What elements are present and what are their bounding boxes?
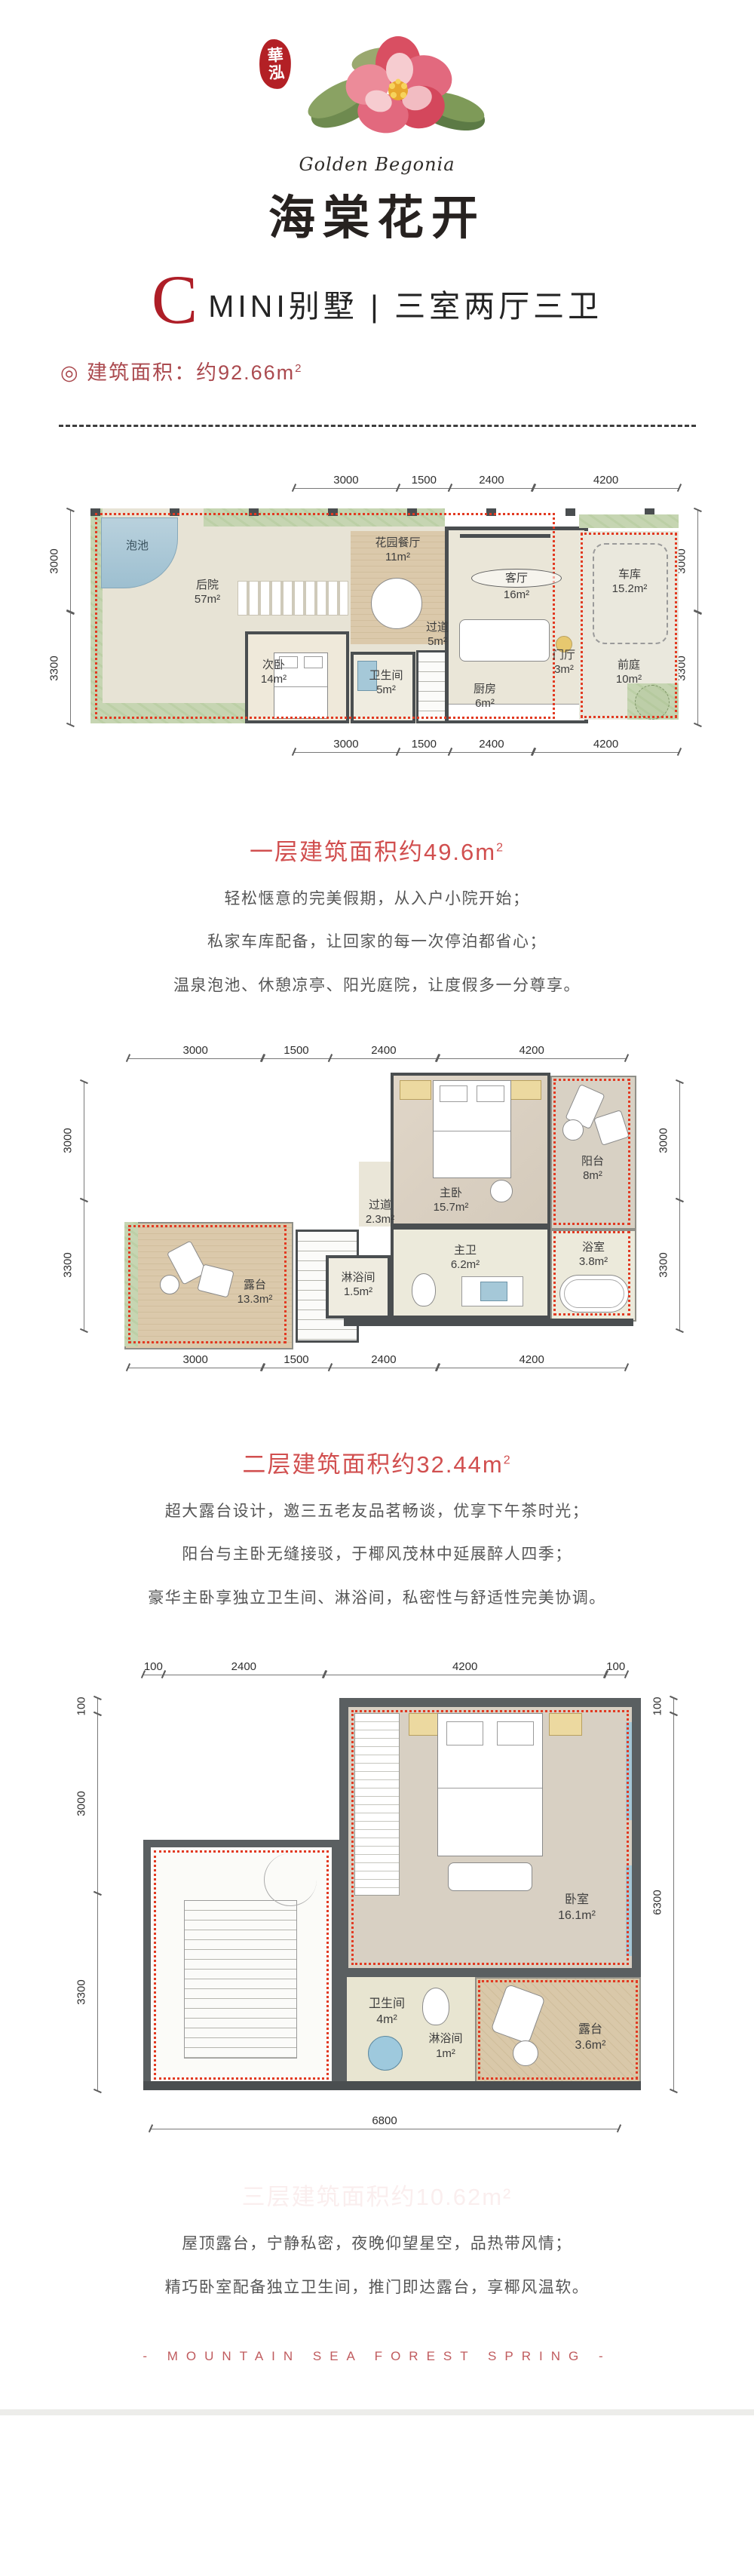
floor3-dims-left: 100 3000 3300 — [87, 1698, 98, 2090]
floor1-line-1: 轻松惬意的完美假期，从入户小院开始； — [0, 886, 754, 912]
floor2-building: 露台 13.3m² 过道 2.3m² 主卧 15.7m² — [90, 1065, 679, 1344]
floor3-stairs — [184, 1900, 297, 2059]
room-label-second-bedroom: 次卧 14m² — [247, 658, 300, 687]
bullet-icon: ◎ — [60, 361, 80, 384]
poster-page: 華泓 — [0, 0, 754, 2415]
dashed-divider — [59, 425, 696, 427]
room-label-garage: 车库 15.2m² — [588, 567, 671, 597]
terrace-table — [160, 1275, 179, 1294]
room-label-floor1-corridor: 过道 5m² — [415, 620, 460, 649]
brand-name-chinese: 海棠花开 — [0, 180, 754, 247]
room-label-balcony: 阳台 8m² — [562, 1154, 623, 1184]
floor1-heading: 一层建筑面积约49.6m2 — [0, 833, 754, 867]
floor3-building: 卧室 16.1m² 卫生间 4m² 淋浴间 1m² — [121, 1698, 648, 2090]
floor3-stair-block — [143, 1840, 339, 2090]
floor1-text-section: 一层建筑面积约49.6m2 轻松惬意的完美假期，从入户小院开始； 私家车库配备，… — [0, 833, 754, 999]
brand-name-english: Golden Begonia — [0, 154, 754, 175]
floor2-heading: 二层建筑面积约32.44m2 — [0, 1445, 754, 1479]
unit-title: C MINI别墅 | 三室两厅三卫 — [0, 273, 754, 327]
floor2-bottom-wall — [344, 1319, 633, 1326]
vanity-counter — [461, 1276, 523, 1306]
room-label-master-bath: 主卫 6.2m² — [431, 1243, 499, 1273]
room-label-pool: 泡池 — [107, 539, 167, 554]
room-label-floor2-shower: 淋浴间 1.5m² — [326, 1270, 391, 1300]
floor3-line-2: 精巧卧室配备独立卫生间，推门即达露台，享椰风温软。 — [0, 2275, 754, 2301]
floor2-line-2: 阳台与主卧无缝接驳，于椰风茂林中延展醉人四季； — [0, 1542, 754, 1567]
room-label-master-bedroom: 主卧 15.7m² — [413, 1186, 489, 1215]
brand-logo: 華泓 — [0, 0, 754, 247]
wardrobe — [354, 1713, 400, 1896]
window-strip-bottom — [626, 1865, 632, 1956]
terrace-garden-edge — [124, 1222, 138, 1346]
room-label-floor3-terrace: 露台 3.6m² — [558, 2022, 623, 2054]
room-label-floor3-bedroom: 卧室 16.1m² — [535, 1893, 618, 1924]
unit-letter: C — [152, 273, 198, 327]
room-label-garden-dining: 花园餐厅 11m² — [351, 536, 445, 565]
floor1-dims-left: 3000 3300 — [60, 510, 71, 725]
tree-icon — [635, 685, 670, 720]
floor3-bedroom-block — [339, 1698, 641, 1977]
seal-text: 華泓 — [262, 46, 287, 82]
nightstand-right — [549, 1713, 582, 1736]
total-area-sup: 2 — [295, 362, 302, 375]
floor3-bathroom — [339, 1977, 475, 2083]
floor2-dims-bottom: 3000 1500 2400 4200 — [128, 1358, 626, 1368]
room-label-floor3-bathroom: 卫生间 4m² — [353, 1997, 421, 2028]
floor2-dims-left: 3000 3300 — [74, 1082, 84, 1331]
floor3-heading-ghost: 三层建筑面积约10.62m² — [0, 2178, 754, 2212]
floor1-dims-top: 3000 1500 2400 4200 — [294, 478, 679, 489]
room-label-floor1-bathroom: 卫生间 5m² — [356, 668, 416, 698]
floor3-plan: 100 2400 4200 100 100 3000 3300 100 6300… — [38, 1650, 716, 2148]
room-label-bath: 浴室 3.8m² — [564, 1240, 623, 1270]
toilet — [422, 1988, 449, 2025]
room-label-living: 客厅 16m² — [471, 569, 562, 603]
garden-strip-bottom — [90, 703, 264, 723]
room-label-foyer: 门厅 3m² — [543, 648, 585, 677]
total-area-text: 建筑面积：约92.66m — [87, 361, 295, 384]
master-bath — [391, 1227, 550, 1319]
floor2-plan: 3000 1500 2400 4200 3000 3300 3000 3300 … — [38, 1035, 716, 1397]
bed-bench — [448, 1862, 532, 1891]
floor2-line-1: 超大露台设计，邀三五老友品茗畅谈，优享下午茶时光； — [0, 1499, 754, 1524]
floor2-line-3: 豪华主卧享独立卫生间、淋浴间，私密性与舒适性完美协调。 — [0, 1586, 754, 1611]
floor1-line-2: 私家车库配备，让回家的每一次停泊都省心； — [0, 929, 754, 955]
floor3-bottom-wall — [143, 2081, 641, 2090]
room-label-kitchen: 厨房 6m² — [458, 682, 511, 711]
window-strip-top — [626, 1722, 632, 1820]
room-label-front-yard: 前庭 10m² — [590, 658, 668, 687]
floor3-dims-right: 100 6300 — [664, 1698, 674, 2090]
brand-seal: 華泓 — [258, 38, 293, 91]
door-swing-arc — [264, 1853, 317, 1906]
floor1-line-3: 温泉泡池、休憩凉亭、阳光庭院，让度假多一分尊享。 — [0, 973, 754, 999]
floor2-dims-top: 3000 1500 2400 4200 — [128, 1049, 626, 1059]
floor3-text-section: 三层建筑面积约10.62m² 屋顶露台，宁静私密，夜晚仰望星空，品热带风情； 精… — [0, 2178, 754, 2300]
sofa — [459, 619, 550, 662]
garage-garden-strip — [579, 514, 679, 528]
bedroom-rug — [490, 1180, 513, 1202]
floor2-text-section: 二层建筑面积约32.44m2 超大露台设计，邀三五老友品茗畅谈，优享下午茶时光；… — [0, 1445, 754, 1611]
unit-description: MINI别墅 | 三室两厅三卫 — [208, 281, 602, 327]
room-label-floor2-corridor: 过道 2.3m² — [356, 1198, 404, 1227]
shower-tray — [368, 2036, 403, 2071]
pergola-trellis — [238, 581, 348, 616]
total-area-line: ◎ 建筑面积：约92.66m2 — [60, 356, 694, 385]
balcony-table — [562, 1119, 584, 1141]
floor1-dims-bottom: 3000 1500 2400 4200 — [294, 742, 679, 753]
room-label-backyard: 后院 57m² — [166, 578, 249, 607]
floor3-dims-bottom: 6800 — [151, 2119, 618, 2129]
bathtub — [559, 1275, 629, 1313]
floor1-dims-right: 3000 3300 — [688, 510, 698, 725]
room-label-floor3-shower: 淋浴间 1m² — [413, 2031, 478, 2061]
floor1-building: 泡池 后院 57m² 花园餐厅 11m² 次卧 14m² — [90, 508, 679, 723]
footer-tagline: - MOUNTAIN SEA FOREST SPRING - — [0, 2349, 754, 2364]
logo-artwork: 華泓 — [249, 32, 505, 152]
room-label-floor2-terrace: 露台 13.3m² — [225, 1278, 285, 1307]
begonia-flower-icon — [294, 32, 498, 156]
floor1-plan: 3000 1500 2400 4200 3000 3300 3000 3300 … — [38, 465, 716, 789]
floor3-dims-top: 100 2400 4200 100 — [143, 1665, 626, 1675]
floor3-line-1: 屋顶露台，宁静私密，夜晚仰望星空，品热带风情； — [0, 2231, 754, 2257]
